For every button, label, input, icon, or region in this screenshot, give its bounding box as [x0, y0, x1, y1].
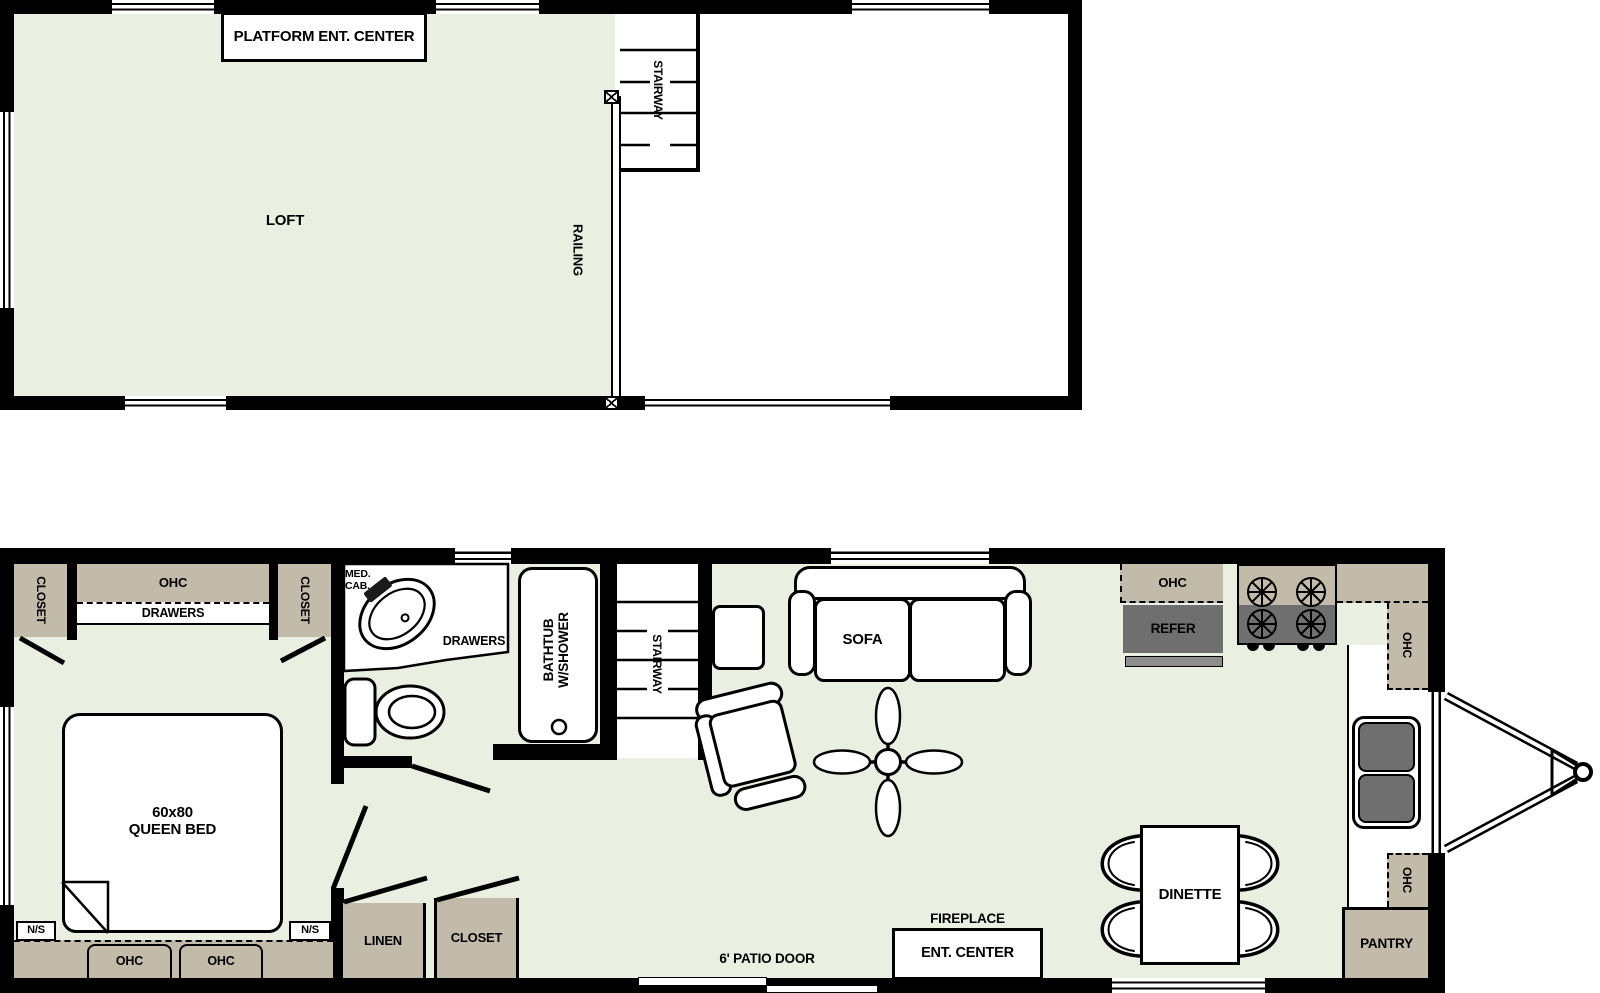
- railing: [611, 96, 621, 396]
- wall-segment: [67, 564, 77, 640]
- kitchen-sink: [1352, 716, 1421, 829]
- window: [125, 396, 226, 410]
- dinette-label: DINETTE: [1159, 887, 1222, 903]
- window: [436, 0, 539, 14]
- railing-post-icon: [604, 90, 619, 104]
- hitch-hook-icon: [1575, 764, 1591, 780]
- hitch: [1446, 696, 1591, 849]
- nightstand-right: N/S: [289, 921, 331, 941]
- linen-closet: LINEN: [340, 903, 426, 978]
- stairway-upper-label: STAIRWAY: [651, 60, 665, 120]
- refrigerator: REFER: [1123, 605, 1223, 653]
- patio-door-panel: [766, 985, 878, 993]
- sofa-arm-right: [1004, 590, 1032, 676]
- sofa-seat-right: [909, 598, 1006, 682]
- upper-wall-right: [1068, 0, 1082, 410]
- sofa-back: [794, 566, 1026, 600]
- counter-ohc-label: OHC: [1400, 867, 1414, 893]
- nightstand-right-label: N/S: [301, 925, 319, 937]
- bathroom-wall: [344, 756, 412, 768]
- stove: [1237, 564, 1337, 645]
- window: [852, 0, 989, 14]
- ent-center: ENT. CENTER: [892, 928, 1043, 980]
- closet-right-label: CLOSET: [298, 576, 312, 623]
- bed-label: 60x80 QUEEN BED: [65, 804, 280, 838]
- bedroom-base-ohc-left: OHC: [87, 944, 172, 978]
- bedroom-wall-upper: [331, 564, 344, 784]
- pantry: PANTRY: [1342, 907, 1428, 978]
- floorplan-canvas: PLATFORM ENT. CENTER LOFT STAIRWAY RAILI…: [0, 0, 1600, 993]
- hall-closet-label: CLOSET: [451, 931, 503, 945]
- platform-ent-center-label: PLATFORM ENT. CENTER: [234, 29, 415, 45]
- sofa-label: SOFA: [814, 598, 911, 682]
- corner-ohc-label: OHC: [1400, 632, 1414, 658]
- corner-ohc-top: [1337, 564, 1428, 603]
- bathroom-wall: [493, 744, 617, 760]
- window: [1112, 978, 1265, 993]
- sink-basin: [1358, 774, 1415, 823]
- wall-segment: [269, 564, 278, 640]
- sofa-arm-left: [788, 590, 816, 676]
- pantry-label: PANTRY: [1360, 937, 1413, 951]
- fireplace-label: FIREPLACE: [920, 911, 1015, 927]
- entry-door: [1428, 692, 1445, 853]
- window: [0, 112, 14, 308]
- bedroom-base-ohc-right: OHC: [179, 944, 263, 978]
- closet-left-label: CLOSET: [34, 576, 48, 623]
- railing-post-icon: [604, 396, 619, 410]
- bedroom-drawers-label: DRAWERS: [142, 607, 205, 620]
- bedroom-ohc-label: OHC: [159, 576, 187, 590]
- ent-center-label: ENT. CENTER: [921, 946, 1014, 961]
- bath-drawers-label: DRAWERS: [438, 633, 510, 651]
- window: [0, 707, 14, 905]
- railing-label: RAILING: [571, 224, 586, 276]
- hall-closet: CLOSET: [434, 898, 519, 978]
- refrigerator-base: [1125, 656, 1223, 667]
- bedroom-ohc: OHC: [77, 564, 269, 602]
- med-cab-label: MED. CAB.: [345, 568, 397, 592]
- window: [831, 548, 989, 564]
- nightstand-left-label: N/S: [27, 925, 45, 937]
- dinette-table: DINETTE: [1140, 825, 1240, 965]
- end-table: [712, 605, 765, 670]
- kitchen-ohc-label: OHC: [1158, 576, 1186, 590]
- main-wall-top: [0, 548, 1445, 564]
- bedroom-drawers: DRAWERS: [77, 602, 269, 625]
- sink-basin: [1358, 722, 1415, 772]
- nightstand-left: N/S: [16, 921, 56, 941]
- stairway-main-label: STAIRWAY: [650, 634, 664, 694]
- bedroom-base-ohc-left-label: OHC: [116, 955, 143, 968]
- bedroom-base-cabinet: [14, 940, 333, 978]
- bathtub-label: BATHTUB W/SHOWER: [541, 612, 571, 688]
- bedroom-base-ohc-right-label: OHC: [207, 955, 234, 968]
- loft-label: LOFT: [240, 211, 330, 231]
- loft-floor: [14, 14, 615, 396]
- linen-label: LINEN: [364, 934, 402, 948]
- kitchen-ohc: OHC: [1120, 564, 1223, 603]
- platform-ent-center: PLATFORM ENT. CENTER: [221, 12, 427, 62]
- queen-bed: 60x80 QUEEN BED: [62, 713, 283, 933]
- patio-door-panel: [638, 977, 767, 986]
- window: [112, 0, 214, 14]
- patio-door-label: 6' PATIO DOOR: [697, 951, 837, 968]
- bath-stair-wall: [600, 564, 617, 760]
- window: [645, 396, 890, 410]
- sofa: SOFA: [788, 566, 1032, 684]
- refrigerator-label: REFER: [1151, 622, 1196, 636]
- window: [455, 548, 511, 564]
